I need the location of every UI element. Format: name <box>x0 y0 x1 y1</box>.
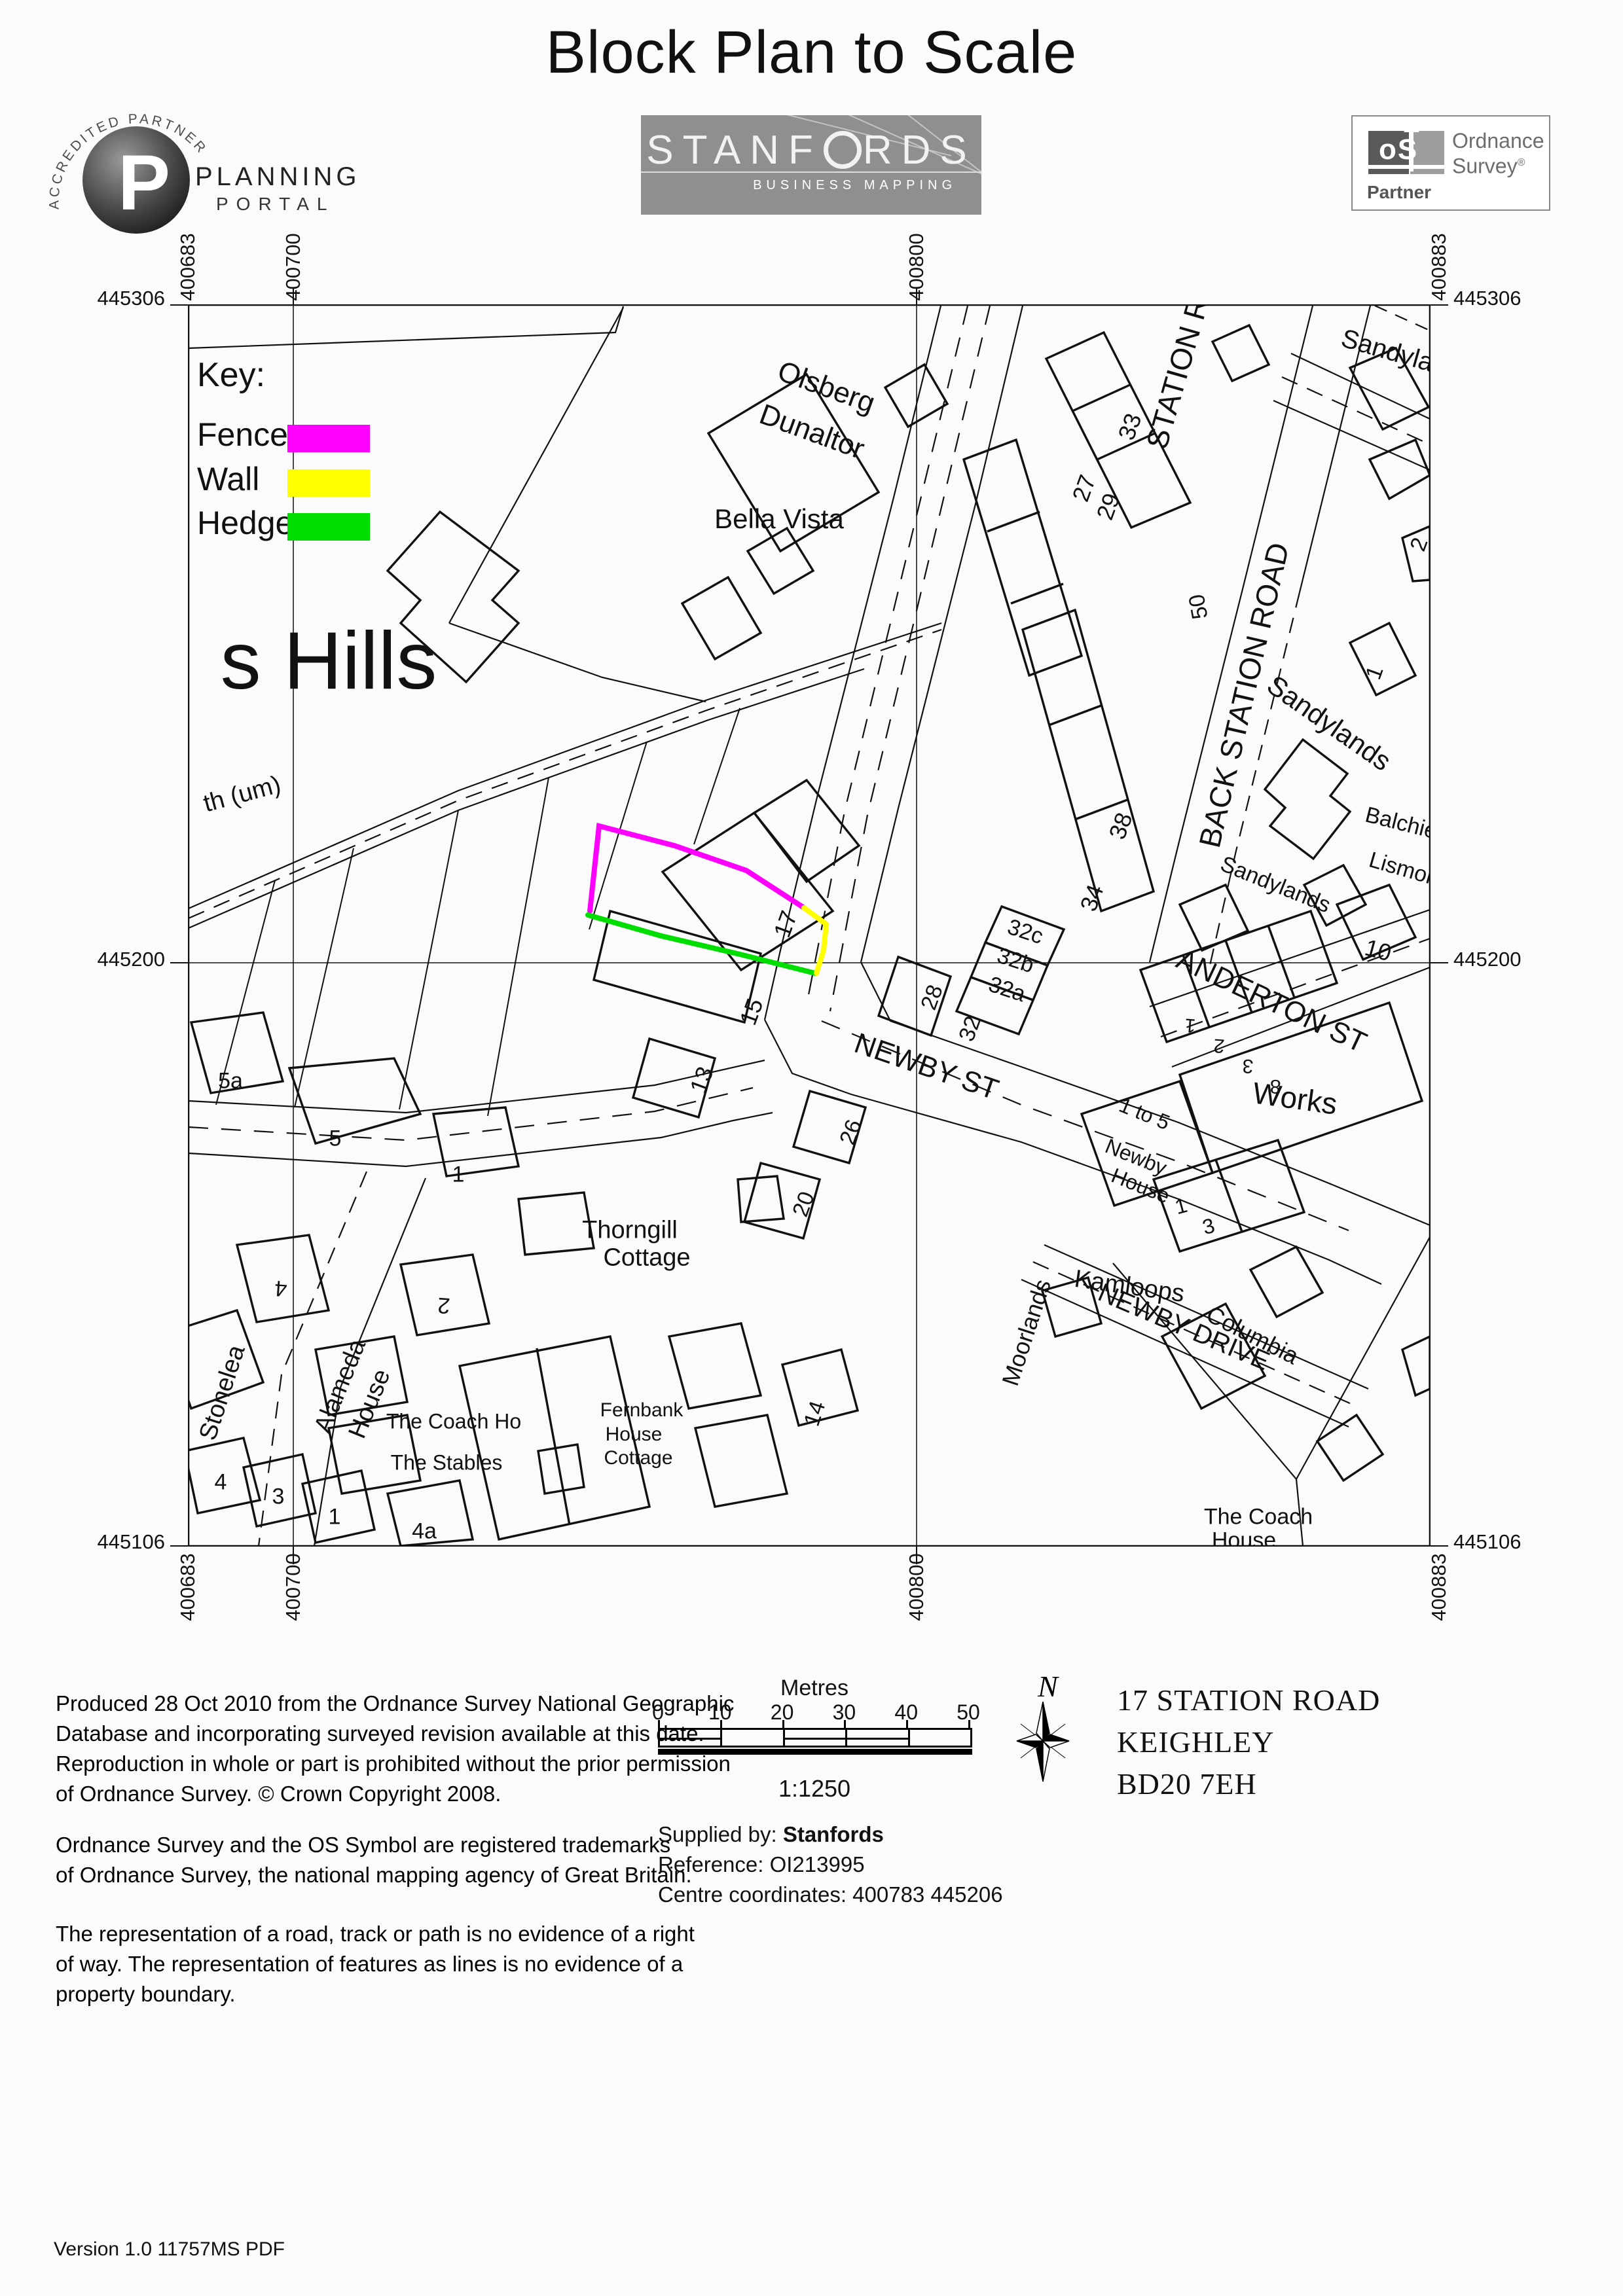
scale-bar-title: Metres <box>658 1676 971 1701</box>
grid-coordinate-label: 445306 <box>1453 287 1521 310</box>
grid-coordinate-label: 400683 <box>176 1553 200 1621</box>
grid-coordinate-label: 445200 <box>1453 948 1521 971</box>
supplier-block: Supplied by: Stanfords Reference: OI2139… <box>658 1820 1003 1910</box>
reference-line: Reference: OI213995 <box>658 1850 1003 1880</box>
north-arrow: N <box>1000 1670 1085 1798</box>
grid-coordinate-label: 400883 <box>1427 1553 1451 1621</box>
address-line: 17 STATION ROAD <box>1117 1679 1380 1721</box>
scale-tick-mark <box>906 1720 908 1728</box>
compass-star-icon <box>1017 1702 1069 1782</box>
scale-tick-mark <box>782 1720 784 1728</box>
supplied-by-line: Supplied by: Stanfords <box>658 1820 1003 1850</box>
footer-note-line: of Ordnance Survey. © Crown Copyright 20… <box>56 1782 501 1806</box>
scale-bar-segment <box>910 1730 970 1746</box>
scale-bar-segment <box>785 1730 847 1746</box>
scale-bar-segment <box>660 1730 722 1746</box>
grid-coordinate-label: 400883 <box>1427 233 1451 300</box>
version-label: Version 1.0 11757MS PDF <box>54 2238 285 2261</box>
grid-coordinate-label: 445200 <box>98 948 165 971</box>
scale-ratio: 1:1250 <box>658 1775 971 1803</box>
footer-note-line: property boundary. <box>56 1982 236 2007</box>
north-letter: N <box>1037 1670 1059 1703</box>
grid-coordinate-label: 400683 <box>176 233 200 300</box>
footer-note-line: Produced 28 Oct 2010 from the Ordnance S… <box>56 1691 734 1716</box>
grid-coordinate-label: 445106 <box>98 1530 165 1554</box>
centre-coordinates-line: Centre coordinates: 400783 445206 <box>658 1880 1003 1910</box>
scale-bar-baseline <box>658 1749 972 1755</box>
footer-note-line: of way. The representation of features a… <box>56 1952 683 1977</box>
scale-tick-mark <box>720 1720 722 1728</box>
footer-note-line: of Ordnance Survey, the national mapping… <box>56 1863 692 1888</box>
grid-coordinate-label: 400800 <box>905 1553 928 1621</box>
grid-coordinate-label: 400700 <box>282 233 305 300</box>
address-line: KEIGHLEY <box>1117 1721 1380 1763</box>
supplier-name: Stanfords <box>783 1822 884 1846</box>
grid-coordinate-label: 445106 <box>1453 1530 1521 1554</box>
site-address: 17 STATION ROADKEIGHLEYBD20 7EH <box>1117 1679 1380 1805</box>
grid-coordinate-label: 445306 <box>98 287 165 310</box>
block-plan-page: Block Plan to Scale ACCREDITED PARTNER P… <box>0 0 1623 2296</box>
footer-note-line: The representation of a road, track or p… <box>56 1922 695 1946</box>
footer-note-line: Ordnance Survey and the OS Symbol are re… <box>56 1833 670 1857</box>
scale-tick-mark <box>968 1720 970 1728</box>
scale-tick-mark <box>658 1720 660 1728</box>
address-line: BD20 7EH <box>1117 1763 1380 1805</box>
grid-coordinate-label: 400800 <box>905 233 928 300</box>
scale-bar-graphic <box>658 1728 972 1748</box>
scale-bar-segment <box>722 1730 784 1746</box>
footer-note-line: Reproduction in whole or part is prohibi… <box>56 1751 731 1776</box>
scale-bar-segment <box>847 1730 909 1746</box>
supplied-by-label: Supplied by: <box>658 1822 783 1846</box>
scale-tick-mark <box>844 1720 846 1728</box>
grid-coordinate-label: 400700 <box>282 1553 305 1621</box>
footer-note-line: Database and incorporating surveyed revi… <box>56 1721 704 1746</box>
